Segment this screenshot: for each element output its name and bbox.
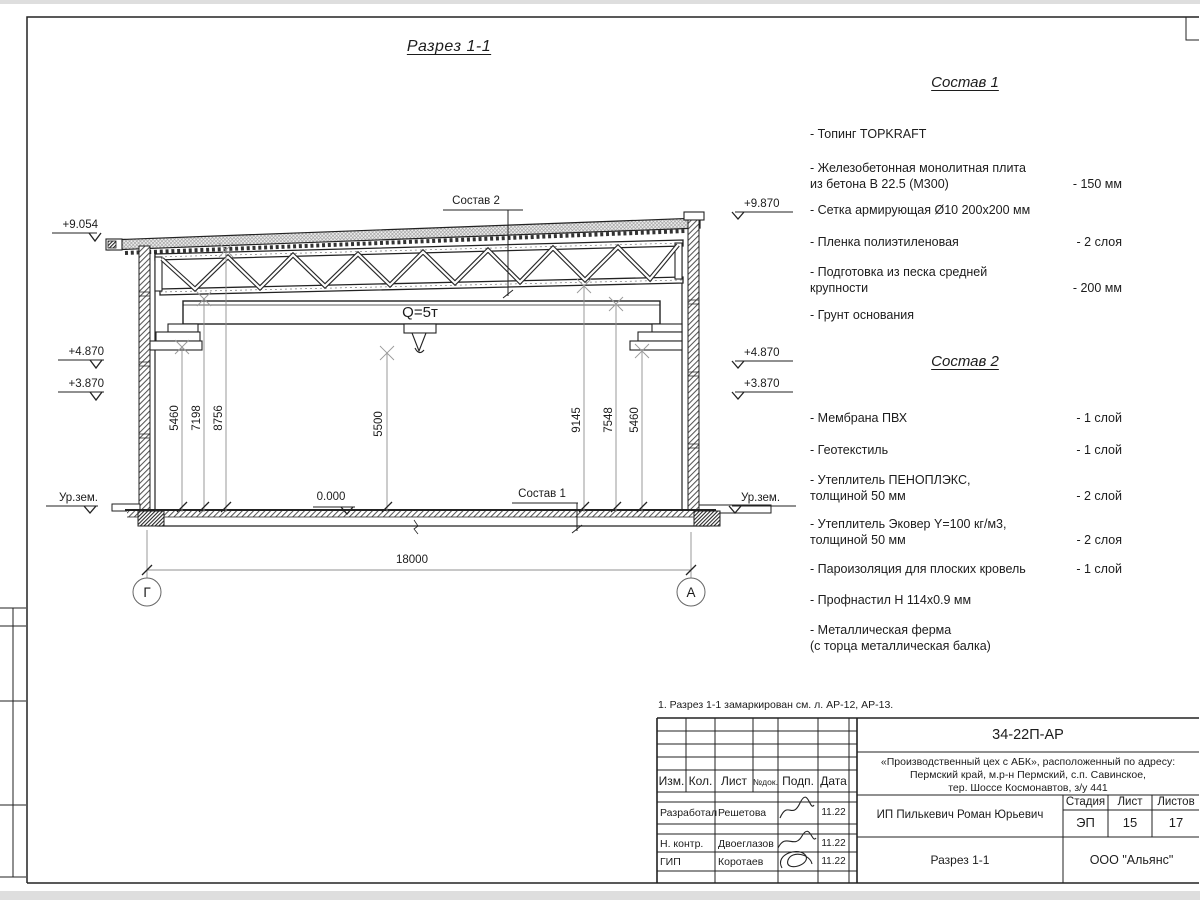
tb-sheet-value: 15 [1108,815,1152,830]
dim-right-5460: 5460 [628,390,642,450]
tb-col-kol: Кол. [686,774,715,788]
legend2-item: - Пароизоляция для плоских кровель - 1 с… [810,561,1122,577]
tb-sheet-title: Разрез 1-1 [857,853,1063,867]
tb-col-list: Лист [715,774,753,788]
tb-company: ООО "Альянс" [1063,853,1200,867]
tb-sheets-label: Листов [1152,796,1200,808]
sheet-note: 1. Разрез 1-1 замаркирован см. л. АР-12,… [658,699,978,711]
callout-floor-label: Состав 1 [492,488,592,500]
dim-center-5500: 5500 [372,394,386,454]
roof-truss [155,240,683,295]
callout-roof-label: Состав 2 [426,195,526,207]
legend1-title: Состав 1 [800,74,1130,91]
tb-col-ndoc: №док. [753,777,778,787]
floor-slab [112,504,771,534]
dim-left-7198: 7198 [190,388,204,448]
dim-left-8756: 8756 [212,388,226,448]
tb-col-podp: Подп. [778,774,818,788]
legend1-item: - Пленка полиэтиленовая - 2 слоя [810,234,1122,250]
legend2-item: - Мембрана ПВХ - 1 слой [810,410,1122,426]
tb-role-developer: Разработал [660,807,717,819]
tb-doc-number: 34-22П-АР [857,727,1199,743]
legend1-item: - Сетка армирующая Ø10 200x200 мм [810,202,1122,218]
tb-client: ИП Пилькевич Роман Юрьевич [857,809,1063,821]
tb-sheet-label: Лист [1108,796,1152,808]
axis-label-right: А [676,585,706,600]
drawing-title: Разрез 1-1 [369,38,529,56]
tb-stage-label: Стадия [1063,796,1108,808]
elevation-right-mid: +4.870 [744,347,804,359]
tb-name-gip: Коротаев [718,856,763,868]
tb-date-gip: 11.22 [818,856,849,867]
tb-date-developer: 11.22 [818,807,849,818]
tb-role-gip: ГИП [660,856,681,868]
legend2-item: - Профнастил Н 114x0.9 мм [810,592,1122,608]
axis-label-left: Г [132,585,162,600]
legend1-item: - Подготовка из песка средней крупности … [810,264,1122,296]
signatures [778,797,816,868]
legend2-item: - Утеплитель Эковер Y=100 кг/м3, толщино… [810,516,1122,548]
legend1-item: - Железобетонная монолитная плита из бет… [810,160,1122,192]
elevation-left-top: +9.054 [40,219,98,231]
tb-col-data: Дата [818,774,849,788]
dim-span-18000: 18000 [362,554,462,566]
tb-stage-value: ЭП [1063,815,1108,830]
legend2-item: - Утеплитель ПЕНОПЛЭКС, толщиной 50 мм -… [810,472,1122,504]
legend1-item: - Топинг TOPKRAFT [810,126,1122,142]
dim-left-5460: 5460 [168,388,182,448]
tb-sheets-value: 17 [1152,815,1200,830]
legend2-item: - Геотекстиль - 1 слой [810,442,1122,458]
tb-col-izm: Изм. [657,774,686,788]
elevation-left-low: +3.870 [46,378,104,390]
tb-name-ncontrol: Двоеглазов [718,838,774,850]
ground-level-right-label: Ур.зем. [741,492,803,504]
dim-right-7548: 7548 [602,390,616,450]
elevation-right-top: +9.870 [744,198,804,210]
ground-level-left-label: Ур.зем. [36,492,98,504]
tb-role-ncontrol: Н. контр. [660,838,703,850]
elevation-right-low: +3.870 [744,378,804,390]
legend2-item: - Металлическая ферма (с торца металличе… [810,622,1122,654]
tb-project-name: «Производственный цех с АБК», расположен… [862,756,1194,795]
legend2-title: Состав 2 [800,353,1130,370]
legend1-item: - Грунт основания [810,307,1122,323]
tb-name-developer: Решетова [718,807,766,819]
drawing-sheet: Разрез 1-1 Состав 2 Состав 1 Q=5т 0.000 … [0,0,1200,900]
side-stamp [0,608,26,877]
tb-date-ncontrol: 11.22 [818,838,849,849]
elevation-left-mid: +4.870 [46,346,104,358]
crane-capacity-label: Q=5т [380,304,460,321]
dim-right-9145: 9145 [570,390,584,450]
zero-level-label: 0.000 [301,491,361,503]
axis-bubbles [133,578,705,606]
